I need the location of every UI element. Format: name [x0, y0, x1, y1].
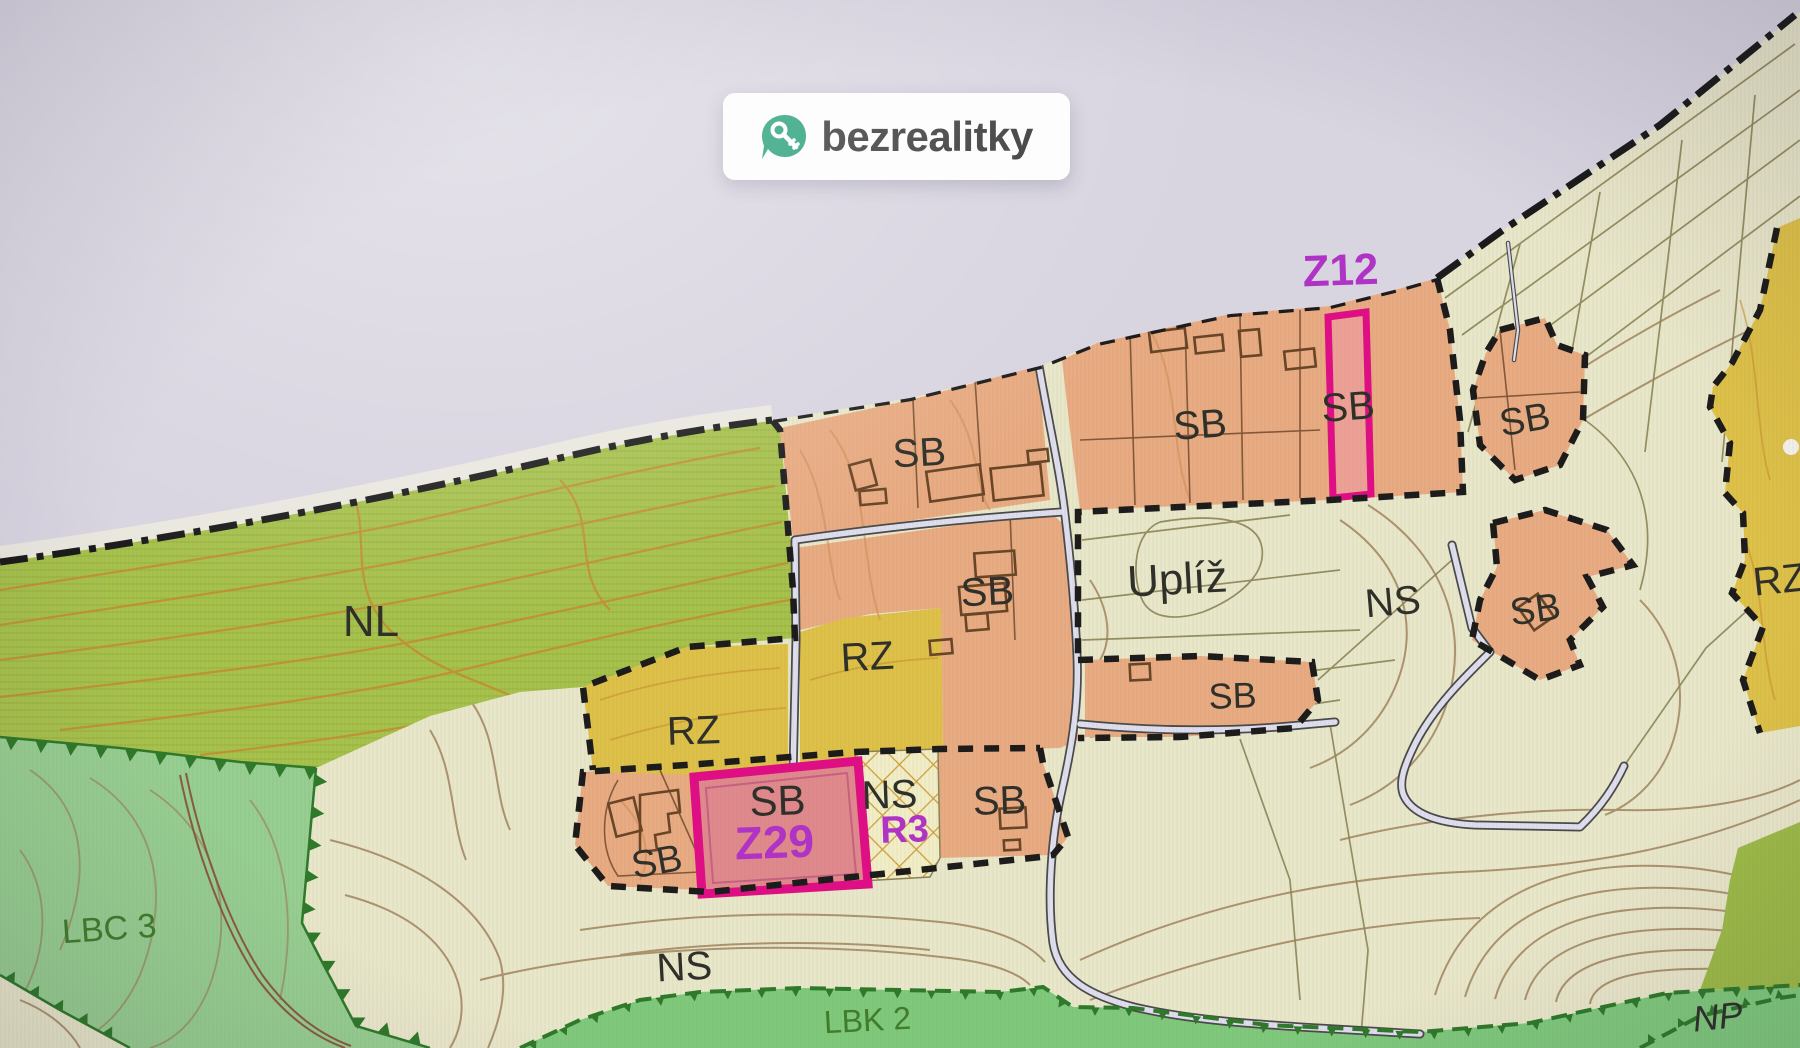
label-lbc3: LBC 3 — [61, 907, 158, 951]
label-sb-8: SB — [628, 837, 685, 887]
label-nl: NL — [343, 597, 399, 646]
label-r3: R3 — [880, 808, 930, 852]
label-rz-3: RZ — [1751, 555, 1800, 604]
label-lbk2: LBK 2 — [823, 1000, 912, 1041]
label-ns-2: NS — [1363, 578, 1422, 627]
pin-key-icon — [760, 113, 808, 161]
label-z29: Z29 — [734, 815, 815, 870]
label-sb-7: SB — [1208, 674, 1257, 717]
label-sb-6: SB — [1507, 586, 1563, 635]
logo-text: bezrealitky — [821, 113, 1033, 161]
label-ns-3: NS — [655, 944, 713, 991]
label-z12: Z12 — [1302, 245, 1379, 297]
label-rz-2: RZ — [840, 634, 896, 681]
logo-badge: bezrealitky — [723, 93, 1070, 180]
label-np: NP — [1691, 994, 1745, 1040]
label-sb-2: SB — [960, 569, 1016, 616]
label-sb-4: SB — [1320, 383, 1376, 431]
zoning-map-photo: Z12 SB SB SB SB SB SB SB SB SB SB NL RZ … — [0, 0, 1800, 1048]
label-rz-1: RZ — [666, 708, 721, 754]
label-sb-5: SB — [1496, 395, 1553, 445]
label-upliz: Uplíž — [1126, 552, 1229, 606]
label-sb-3: SB — [1172, 401, 1228, 449]
label-sb-10: SB — [972, 778, 1027, 824]
label-sb-1: SB — [892, 430, 948, 477]
